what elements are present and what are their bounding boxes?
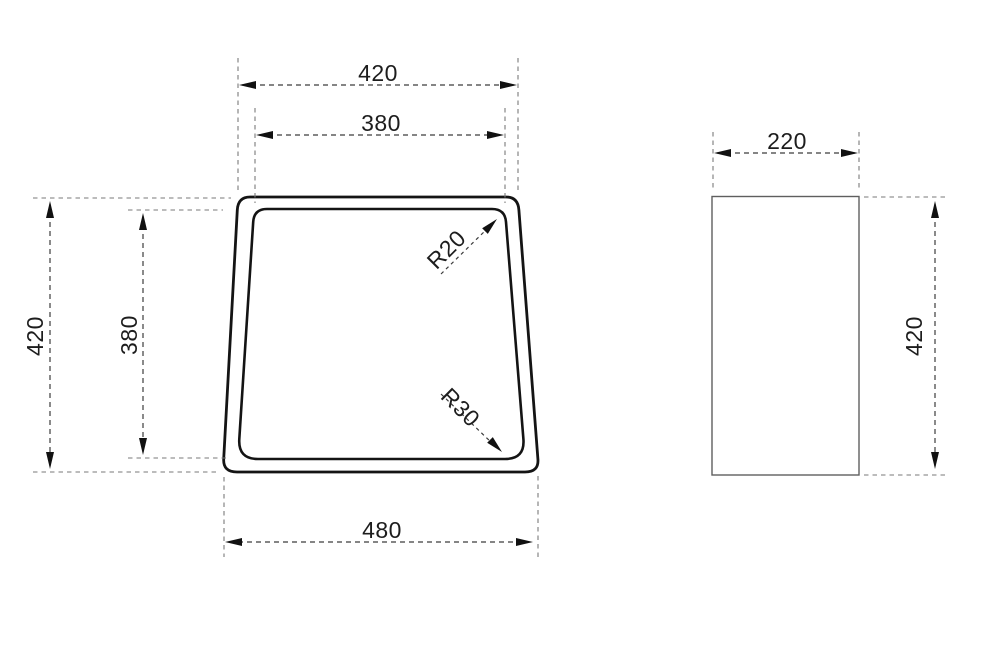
dim-label-height-left-outer: 420	[22, 316, 48, 356]
arrowhead-diagonal-icon	[482, 216, 500, 234]
dimension-height-left-inner: 380	[116, 210, 229, 458]
dim-label-height-left-inner: 380	[116, 315, 142, 355]
front-view-outline-inner	[239, 209, 523, 459]
technical-drawing-page: 420 380 420	[0, 0, 1000, 666]
dimension-width-bottom: 480	[224, 476, 538, 557]
arrowhead-down-icon	[931, 452, 939, 469]
arrowhead-right-icon	[516, 538, 533, 546]
arrowhead-down-icon	[139, 438, 147, 455]
radius-label-top: R20	[422, 225, 471, 274]
dim-label-width-bottom: 480	[362, 517, 402, 543]
arrowhead-right-icon	[487, 131, 504, 139]
side-view: 220 420	[712, 128, 949, 475]
dim-label-width-top-inner: 380	[361, 110, 401, 136]
arrowhead-down-icon	[46, 452, 54, 469]
dimension-side-height: 420	[864, 197, 949, 475]
arrowhead-left-icon	[225, 538, 242, 546]
side-view-outline	[712, 197, 859, 476]
front-view-outline-outer	[224, 197, 538, 472]
radius-label-bottom: R30	[436, 383, 485, 432]
arrowhead-right-icon	[841, 149, 858, 157]
dim-label-side-width: 220	[767, 128, 807, 154]
arrowhead-left-icon	[256, 131, 273, 139]
dimension-width-top-inner: 380	[255, 108, 505, 203]
dim-label-side-height: 420	[901, 316, 927, 356]
dim-label-width-top-outer: 420	[358, 60, 398, 86]
front-view: 420 380 420	[22, 58, 538, 557]
arrowhead-left-icon	[714, 149, 731, 157]
arrowhead-left-icon	[239, 81, 256, 89]
arrowhead-right-icon	[500, 81, 517, 89]
technical-drawing-canvas: 420 380 420	[0, 0, 1000, 666]
arrowhead-up-icon	[139, 213, 147, 230]
radius-callout-top: R20	[422, 216, 500, 274]
dimension-side-width: 220	[713, 128, 859, 191]
arrowhead-up-icon	[931, 201, 939, 218]
arrowhead-diagonal-icon	[487, 437, 505, 455]
radius-callout-bottom: R30	[436, 383, 505, 455]
arrowhead-up-icon	[46, 201, 54, 218]
